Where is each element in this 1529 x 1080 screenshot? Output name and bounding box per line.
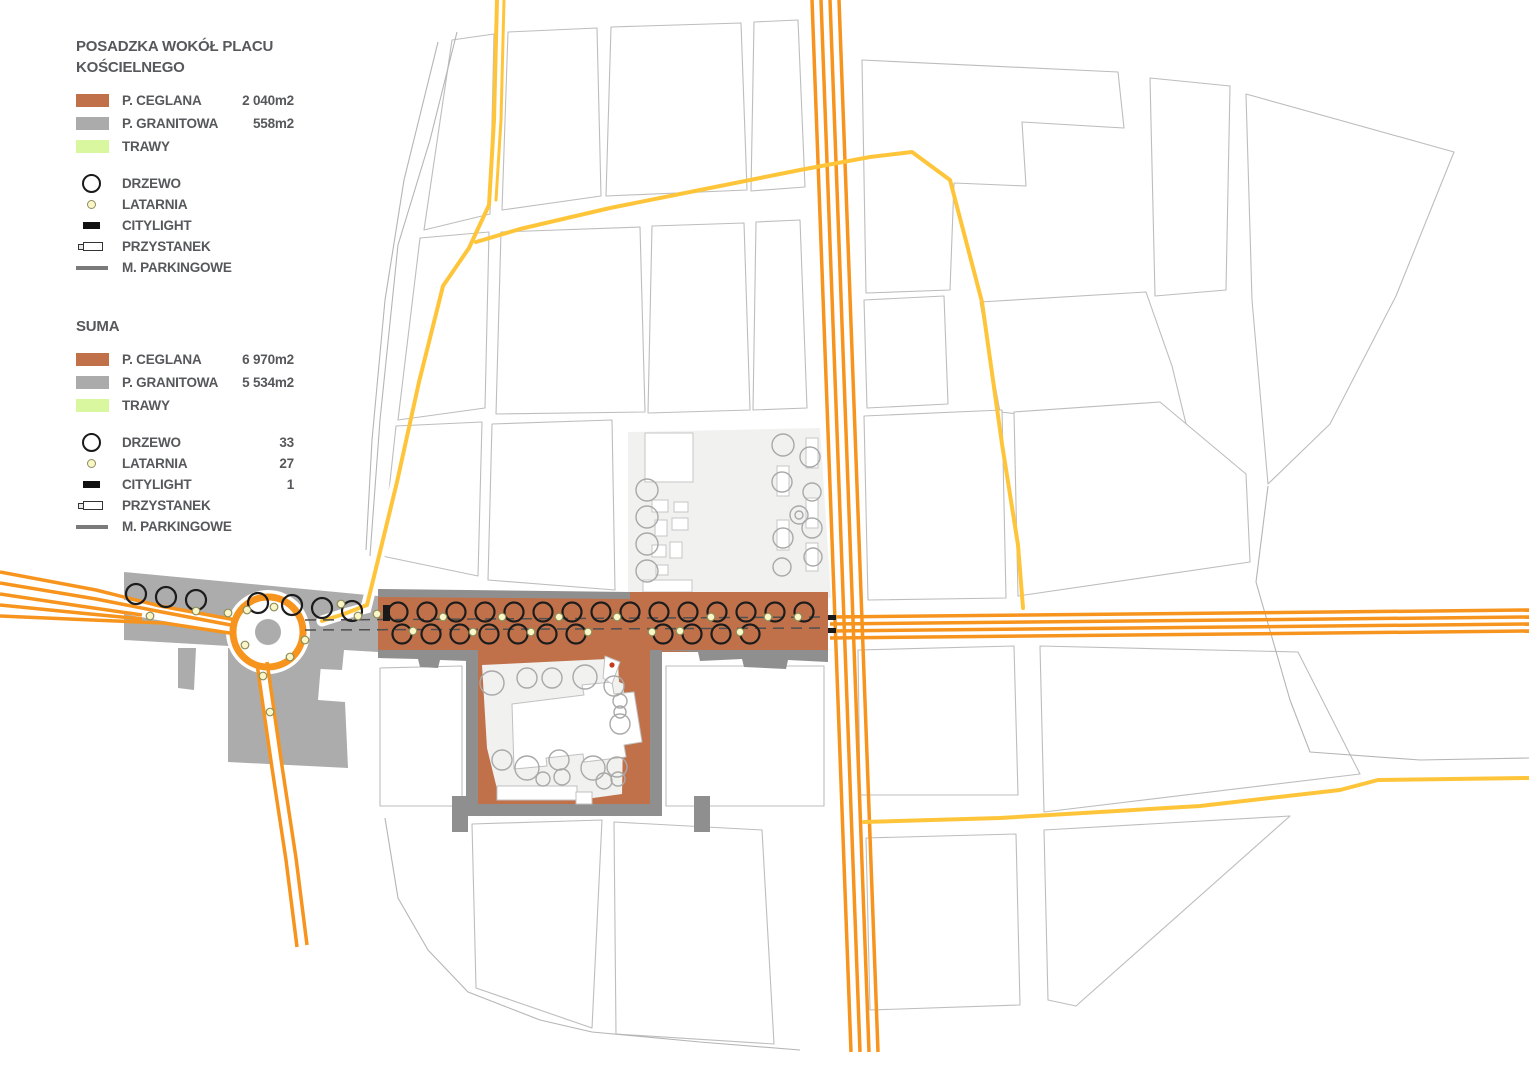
legend-row-drzewo-suma: DRZEWO 33 — [76, 432, 294, 453]
grass-swatch — [76, 399, 109, 412]
legend-row-citylight: CITYLIGHT — [76, 215, 294, 236]
legend-row-przystanek: PRZYSTANEK — [76, 236, 294, 257]
legend-count: 27 — [232, 456, 294, 471]
granite-swatch — [76, 376, 109, 389]
legend-label: LATARNIA — [122, 456, 232, 471]
legend-label: TRAWY — [122, 139, 232, 154]
grass-swatch — [76, 140, 109, 153]
parking-line-icon — [76, 525, 108, 529]
legend-row-granitowa: P. GRANITOWA 558m2 — [76, 112, 294, 135]
legend-label: P. CEGLANA — [122, 93, 232, 108]
tree-icon — [82, 433, 101, 452]
legend-row-trawy: TRAWY — [76, 135, 294, 158]
roundabout-island — [255, 619, 281, 645]
legend-title: POSADZKA WOKÓŁ PLACU KOŚCIELNEGO — [76, 36, 294, 78]
legend-row-parkingowe: M. PARKINGOWE — [76, 257, 294, 278]
legend-label: CITYLIGHT — [122, 477, 232, 492]
legend-row-trawy-suma: TRAWY — [76, 394, 294, 417]
legend-title-line1: POSADZKA WOKÓŁ PLACU — [76, 36, 294, 57]
legend-label: P. CEGLANA — [122, 352, 232, 367]
legend-row-parkingowe-suma: M. PARKINGOWE — [76, 516, 294, 537]
legend-row-latarnia: LATARNIA — [76, 194, 294, 215]
legend-section-suma: SUMA P. CEGLANA 6 970m2 P. GRANITOWA 5 5… — [76, 316, 294, 537]
citylight-icon — [83, 481, 100, 488]
bus-stop-icon — [78, 501, 103, 510]
legend-label: DRZEWO — [122, 176, 232, 191]
legend-label: LATARNIA — [122, 197, 232, 212]
legend-row-citylight-suma: CITYLIGHT 1 — [76, 474, 294, 495]
bus-stop-icon — [78, 242, 103, 251]
legend-row-ceglana-suma: P. CEGLANA 6 970m2 — [76, 348, 294, 371]
legend-section-church-square: POSADZKA WOKÓŁ PLACU KOŚCIELNEGO P. CEGL… — [76, 36, 294, 278]
brick-swatch — [76, 94, 109, 107]
site-plan: POSADZKA WOKÓŁ PLACU KOŚCIELNEGO P. CEGL… — [0, 0, 1529, 1080]
tree-icon — [82, 174, 101, 193]
legend-count: 1 — [232, 477, 294, 492]
brick-swatch — [76, 353, 109, 366]
legend-label: DRZEWO — [122, 435, 232, 450]
legend-row-latarnia-suma: LATARNIA 27 — [76, 453, 294, 474]
suma-title: SUMA — [76, 316, 294, 337]
legend-label: M. PARKINGOWE — [122, 260, 232, 275]
lantern-icon — [87, 200, 96, 209]
legend-row-granitowa-suma: P. GRANITOWA 5 534m2 — [76, 371, 294, 394]
legend-count: 33 — [232, 435, 294, 450]
granite-swatch — [76, 117, 109, 130]
legend-value: 2 040m2 — [232, 93, 294, 108]
legend-value: 6 970m2 — [232, 352, 294, 367]
parking-line-icon — [76, 266, 108, 270]
legend-value: 558m2 — [232, 116, 294, 131]
legend-row-przystanek-suma: PRZYSTANEK — [76, 495, 294, 516]
legend-label: P. GRANITOWA — [122, 375, 232, 390]
city-blocks — [380, 20, 1454, 1044]
legend-label: PRZYSTANEK — [122, 498, 232, 513]
legend-label: CITYLIGHT — [122, 218, 232, 233]
legend-row-drzewo: DRZEWO — [76, 173, 294, 194]
legend-label: P. GRANITOWA — [122, 116, 232, 131]
chapel-dot — [609, 662, 614, 667]
legend-row-ceglana: P. CEGLANA 2 040m2 — [76, 89, 294, 112]
citylight-icon — [83, 222, 100, 229]
legend-label: M. PARKINGOWE — [122, 519, 232, 534]
legend-value: 5 534m2 — [232, 375, 294, 390]
legend-label: TRAWY — [122, 398, 232, 413]
legend-label: PRZYSTANEK — [122, 239, 232, 254]
legend-title-line2: KOŚCIELNEGO — [76, 57, 294, 78]
legend: POSADZKA WOKÓŁ PLACU KOŚCIELNEGO P. CEGL… — [76, 36, 294, 537]
lantern-icon — [87, 459, 96, 468]
